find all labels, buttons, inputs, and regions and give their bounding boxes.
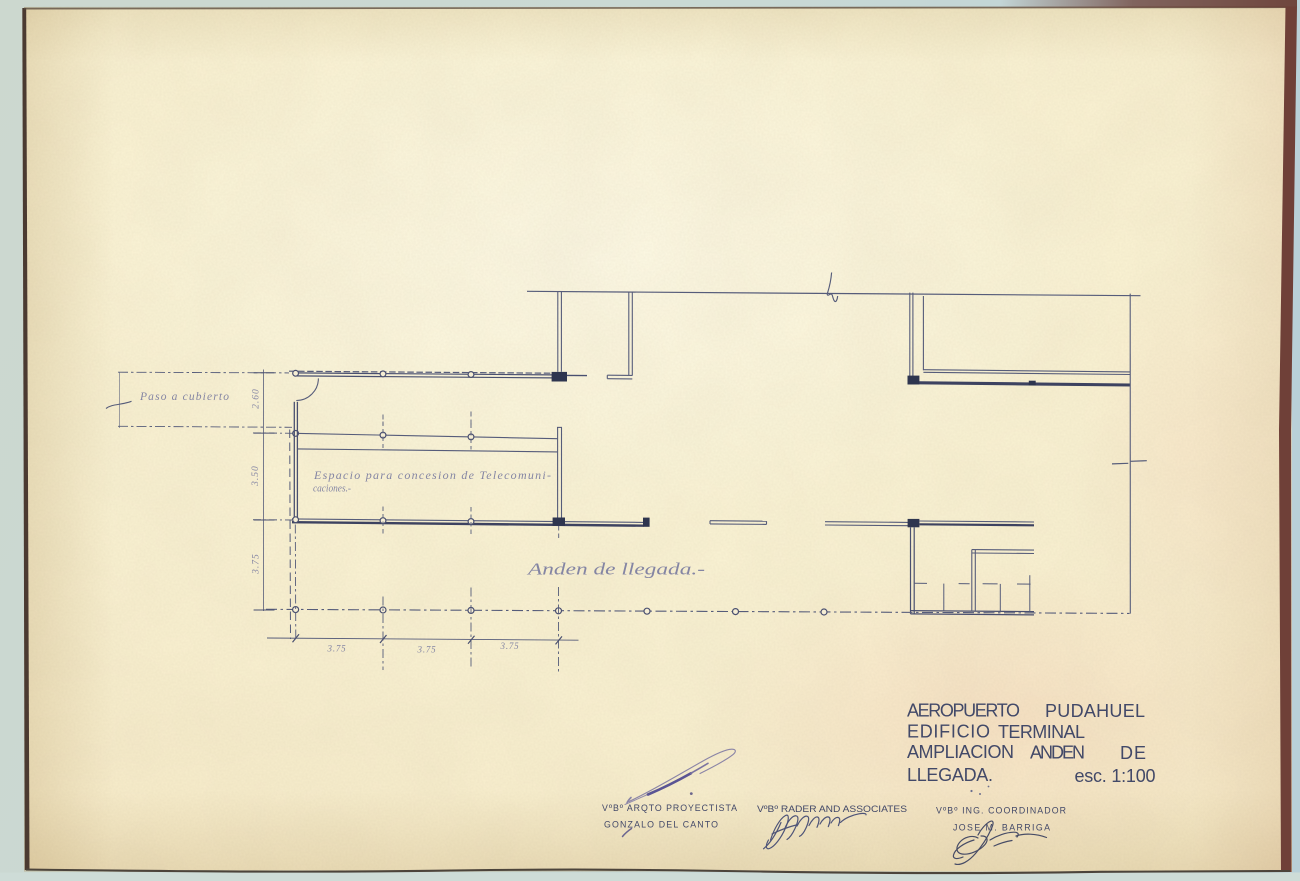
svg-text:AMPLIACION: AMPLIACION	[907, 742, 1014, 762]
svg-text:Anden de llegada.-: Anden de llegada.-	[527, 560, 705, 579]
svg-text:2.60: 2.60	[252, 388, 262, 409]
svg-text:GONZALO DEL CANTO: GONZALO DEL CANTO	[604, 820, 718, 830]
svg-text:ANDEN: ANDEN	[1030, 743, 1085, 763]
svg-text:3.75: 3.75	[417, 645, 437, 655]
svg-text:VºBº RADER AND ASSOCIATES: VºBº RADER AND ASSOCIATES	[757, 804, 907, 814]
svg-text:DE: DE	[1120, 743, 1146, 763]
svg-text:JOSE M. BARRIGA: JOSE M. BARRIGA	[953, 823, 1050, 833]
svg-text:LLEGADA.: LLEGADA.	[907, 765, 993, 785]
svg-text:Paso a cubierto: Paso a cubierto	[139, 391, 229, 403]
svg-text:3.75: 3.75	[252, 553, 262, 575]
svg-text:AEROPUERTO: AEROPUERTO	[907, 701, 1020, 721]
svg-text:esc. 1:100: esc. 1:100	[1075, 766, 1156, 786]
svg-text:3.50: 3.50	[251, 465, 261, 487]
svg-text:3.75: 3.75	[500, 641, 520, 651]
svg-text:Espacio para concesion de Tele: Espacio para concesion de Telecomuni-	[313, 468, 551, 482]
svg-text:VºBº ARQTO PROYECTISTA: VºBº ARQTO PROYECTISTA	[602, 803, 737, 813]
svg-text:VºBº ING. COORDINADOR: VºBº ING. COORDINADOR	[936, 806, 1066, 816]
svg-text:PUDAHUEL: PUDAHUEL	[1045, 701, 1145, 721]
svg-text:TERMINAL: TERMINAL	[998, 722, 1085, 742]
svg-text:EDIFICIO: EDIFICIO	[907, 722, 990, 742]
svg-text:caciones.-: caciones.-	[313, 483, 351, 495]
svg-text:3.75: 3.75	[327, 644, 347, 654]
